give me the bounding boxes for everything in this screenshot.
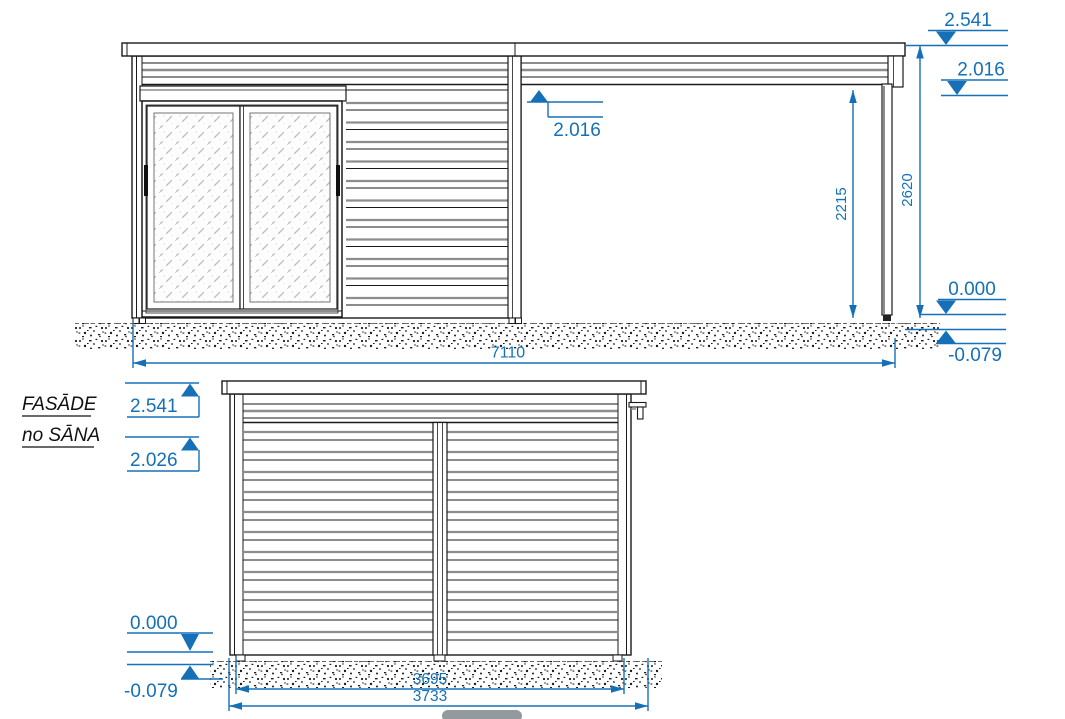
sliding-glass-door bbox=[142, 101, 342, 317]
side-dim-wall-width: 3695 bbox=[413, 671, 447, 688]
wall-divider-post bbox=[433, 423, 447, 656]
side-elevation-view: 2.541 2.026 0.000 -0.079 3695 3733 bbox=[124, 381, 662, 719]
wall-siding-front bbox=[346, 103, 508, 305]
roof-edge-cap bbox=[888, 56, 903, 87]
side-level-wall-top: 2.026 bbox=[130, 450, 178, 471]
door-handle-left bbox=[144, 165, 148, 196]
door-glass-right bbox=[250, 113, 330, 302]
front-level-roof-top: 2.541 bbox=[944, 10, 992, 31]
side-level-zero: 0.000 bbox=[130, 613, 178, 634]
roof-front bbox=[122, 43, 905, 56]
front-level-canopy-beam: 2.016 bbox=[957, 60, 1005, 81]
door-header bbox=[140, 86, 346, 101]
side-level-roof-top: 2.541 bbox=[130, 396, 178, 417]
door-handle-right bbox=[336, 165, 340, 196]
side-dim-overall-width: 3733 bbox=[413, 688, 447, 705]
cropped-footer-mark bbox=[442, 710, 522, 719]
roof-side bbox=[222, 381, 646, 394]
drawing-sheet: 2.541 2.016 2.016 0.000 -0.079 2215 2620… bbox=[0, 0, 1065, 719]
side-level-ground: -0.079 bbox=[124, 681, 178, 702]
front-level-zero: 0.000 bbox=[948, 279, 996, 300]
house-wall-side bbox=[230, 394, 631, 655]
front-elevation-view: 2.541 2.016 2.016 0.000 -0.079 2215 2620… bbox=[75, 10, 1008, 368]
house-feet-front bbox=[133, 318, 522, 324]
house-feet-side bbox=[236, 655, 622, 661]
carport-post-foot bbox=[883, 315, 891, 321]
door-glass-left bbox=[154, 113, 233, 302]
house-corner-post bbox=[508, 56, 521, 318]
drawing-title: FASĀDE no SĀNA bbox=[22, 394, 100, 447]
elevation-drawing: 2.541 2.016 2.016 0.000 -0.079 2215 2620… bbox=[0, 0, 1065, 719]
front-dim-overall-height: 2620 bbox=[899, 173, 916, 206]
title-line2: no SĀNA bbox=[22, 425, 100, 446]
front-level-canopy-clearance: 2.016 bbox=[553, 120, 601, 141]
front-level-ground: -0.079 bbox=[948, 345, 1002, 366]
title-line1: FASĀDE bbox=[22, 394, 97, 415]
front-dim-total-width: 7110 bbox=[491, 345, 526, 362]
front-dim-post-height: 2215 bbox=[833, 187, 850, 220]
